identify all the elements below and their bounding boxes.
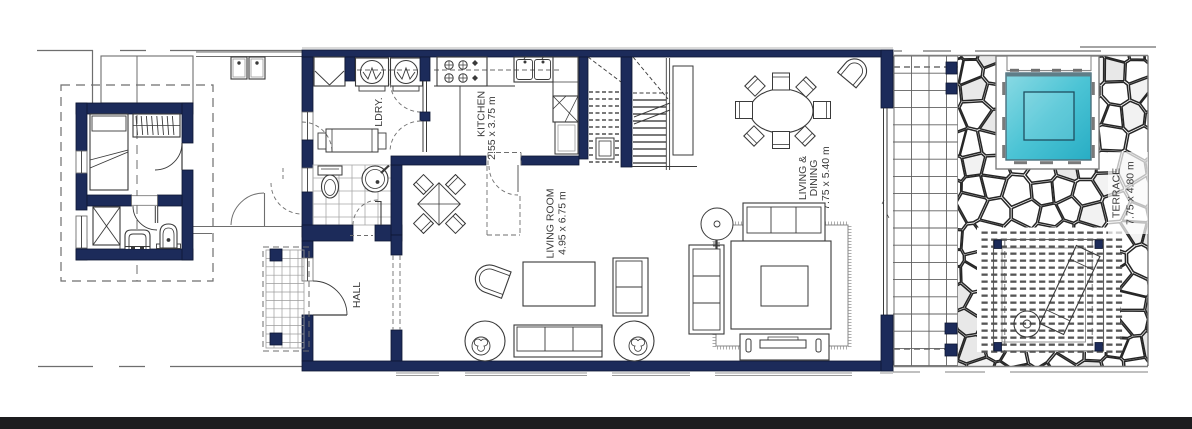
svg-text:TERRACE: TERRACE — [1111, 168, 1123, 218]
svg-text:7.75 x 5.40 m: 7.75 x 5.40 m — [820, 146, 832, 210]
svg-text:HALL: HALL — [351, 282, 363, 308]
svg-text:7.75 x 4.80 m: 7.75 x 4.80 m — [1125, 161, 1137, 225]
svg-text:4.95 x 6.75 m: 4.95 x 6.75 m — [557, 191, 569, 255]
svg-text:LDRY.: LDRY. — [373, 97, 385, 126]
svg-text:DINING: DINING — [808, 160, 820, 197]
svg-text:LIVING ROOM: LIVING ROOM — [545, 188, 557, 258]
svg-text:2.55 x 3.75 m: 2.55 x 3.75 m — [486, 96, 498, 160]
